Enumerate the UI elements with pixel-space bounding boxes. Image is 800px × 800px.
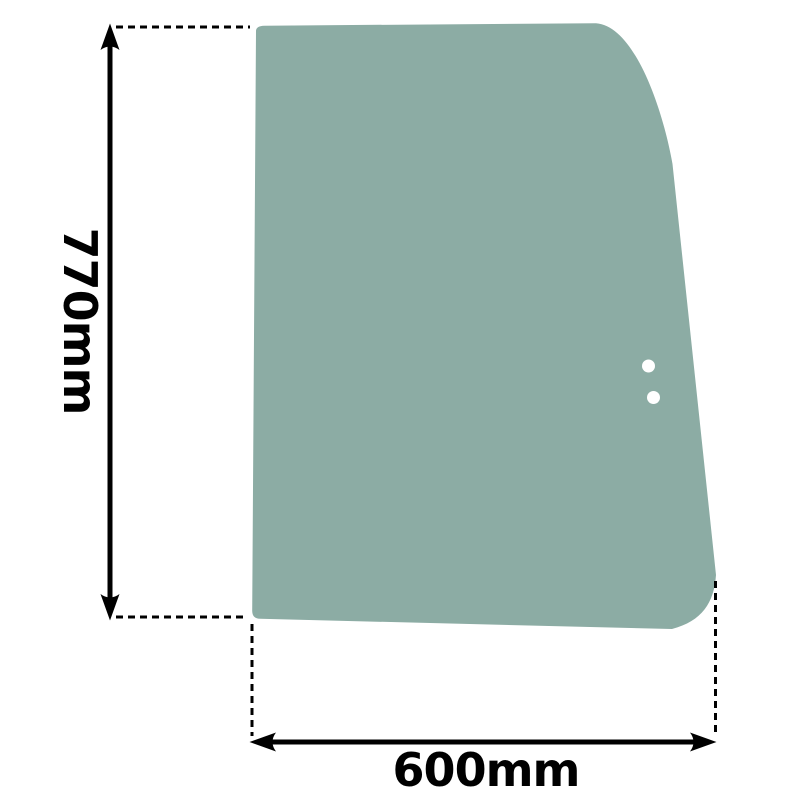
arrowhead-right-icon — [690, 733, 717, 752]
width-dimension-label: 600mm — [393, 747, 580, 793]
mounting-hole-bottom — [647, 391, 660, 404]
diagram-canvas: 770mm 600mm — [0, 0, 800, 800]
glass-diagram-svg — [0, 0, 800, 800]
mounting-hole-top — [642, 360, 655, 373]
glass-panel-shape — [252, 23, 716, 629]
height-dimension-label: 770mm — [57, 228, 103, 415]
height-dimension — [101, 24, 251, 621]
